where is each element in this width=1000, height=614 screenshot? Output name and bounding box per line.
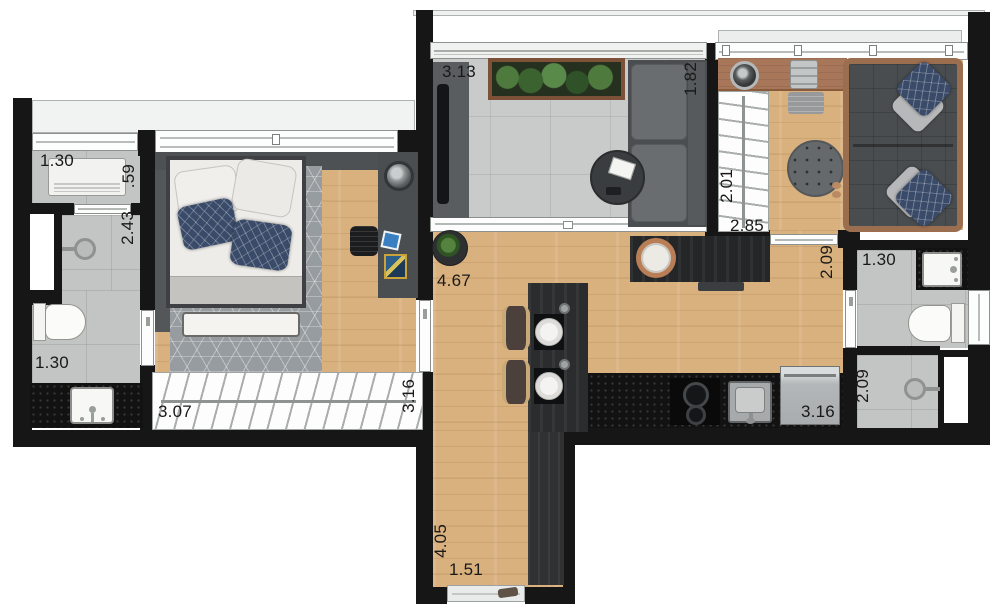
book-icon: [608, 157, 636, 181]
dim-shower2-depth: 2.09: [853, 369, 873, 403]
window-mullion-icon: [794, 45, 802, 56]
slipper-icon: [832, 182, 841, 189]
bedroom-pocket-door: [419, 300, 431, 372]
wall-bath2-divider: [857, 346, 940, 355]
niche-right: [944, 357, 968, 423]
bath1-door: [141, 310, 154, 366]
floor-plan: 1.30 .59 2.43 1.30 3.07 3.16 3.13 1.82 4…: [0, 0, 1000, 614]
kitchen-sink: [728, 381, 772, 423]
wall-hall-right: [563, 430, 575, 604]
window-mullion-icon: [945, 45, 953, 56]
desk-bowl-icon: [384, 161, 414, 191]
pillow-white-2: [230, 157, 298, 219]
slipper-icon: [832, 191, 841, 198]
planter: [488, 58, 625, 100]
shower1-arm-icon: [62, 247, 75, 251]
window-mullion-icon: [272, 134, 280, 145]
dining-table: [528, 283, 588, 432]
dim-bath2-width: 1.30: [862, 250, 896, 270]
desk-tablet: [380, 230, 401, 250]
wall-hall-bottom-right: [525, 587, 575, 604]
bed-bench: [182, 312, 300, 337]
top-ledge: [413, 10, 985, 16]
toilet1-bowl-icon: [45, 304, 86, 340]
console-table: [630, 236, 770, 282]
tv-icon: [437, 84, 449, 204]
wall-right-outer-upper: [968, 12, 990, 290]
bath2-sink: [922, 252, 962, 287]
dim-hall-depth: 4.05: [431, 524, 451, 558]
burner-icon: [686, 405, 706, 425]
hall-cabinet: [528, 432, 564, 585]
glass-icon: [559, 303, 570, 314]
remote-icon: [606, 187, 621, 195]
left-block-ledge: [32, 100, 415, 133]
wall-bath2-left-upper: [843, 240, 857, 290]
dim-bedroom-depth: 3.16: [399, 379, 419, 413]
dim-suite-closet-depth: 2.01: [717, 169, 737, 203]
console-stool: [698, 282, 744, 291]
suite-sliding-door: [770, 234, 838, 245]
suite-bowl-icon: [730, 61, 759, 90]
console-bowl-icon: [636, 238, 676, 278]
wall-bottom-right: [563, 428, 990, 445]
dim-balcony-depth: 1.82: [681, 62, 701, 96]
dim-living-width: 4.67: [437, 271, 471, 291]
toilet2-tank: [951, 303, 965, 343]
dim-balcony-width: 3.13: [442, 62, 476, 82]
desk-picture: [384, 254, 407, 279]
dining-chair: [502, 360, 530, 404]
sofa-cushion: [631, 64, 687, 140]
bed-blanket: [170, 276, 302, 304]
dim-kitchen-width: 3.16: [801, 402, 835, 422]
balcony-railing: [430, 42, 707, 59]
entry-door-mark: [497, 587, 518, 599]
shower2-head-icon: [904, 378, 926, 400]
wall-bottom-left: [13, 430, 433, 447]
shower1-head-icon: [74, 238, 96, 260]
suite-closet: [718, 91, 769, 232]
dim-utility-width: 1.30: [40, 151, 74, 171]
wall-bath1-right-upper: [140, 152, 155, 310]
toilet2-bowl-icon: [908, 305, 951, 342]
dim-utility-depth: .59: [119, 164, 139, 188]
dining-chair: [502, 306, 530, 350]
plant-pot: [432, 230, 468, 266]
entry-threshold: [447, 585, 525, 602]
plate-icon: [535, 372, 563, 400]
bath2-door: [845, 290, 856, 348]
glass-icon: [559, 359, 570, 370]
suite-stool-mat: [788, 92, 824, 114]
bath1-sink: [70, 387, 114, 424]
window-mullion-icon: [722, 45, 730, 56]
dim-bath1-width: 1.30: [35, 353, 69, 373]
dim-living-depth: 2.09: [817, 245, 837, 279]
cooktop: [670, 378, 720, 425]
recess-left: [30, 214, 54, 290]
dim-bedroom-width: 3.07: [158, 402, 192, 422]
plate-icon: [535, 318, 563, 346]
pillow-navy-2: [229, 218, 293, 272]
window-mullion-icon: [869, 45, 877, 56]
suite-chair: [790, 60, 818, 89]
dim-shower1-depth: 2.43: [118, 211, 138, 245]
desk-chair: [350, 226, 378, 256]
bath2-window: [968, 290, 990, 345]
coffee-table: [590, 150, 645, 205]
dim-suite-width: 2.85: [730, 216, 764, 236]
shower2-arm-icon: [925, 387, 940, 391]
wardrobe: [152, 372, 423, 430]
wall-hall-bottom-left: [416, 587, 447, 604]
dim-hall-width: 1.51: [449, 560, 483, 580]
utility-window: [32, 133, 138, 151]
